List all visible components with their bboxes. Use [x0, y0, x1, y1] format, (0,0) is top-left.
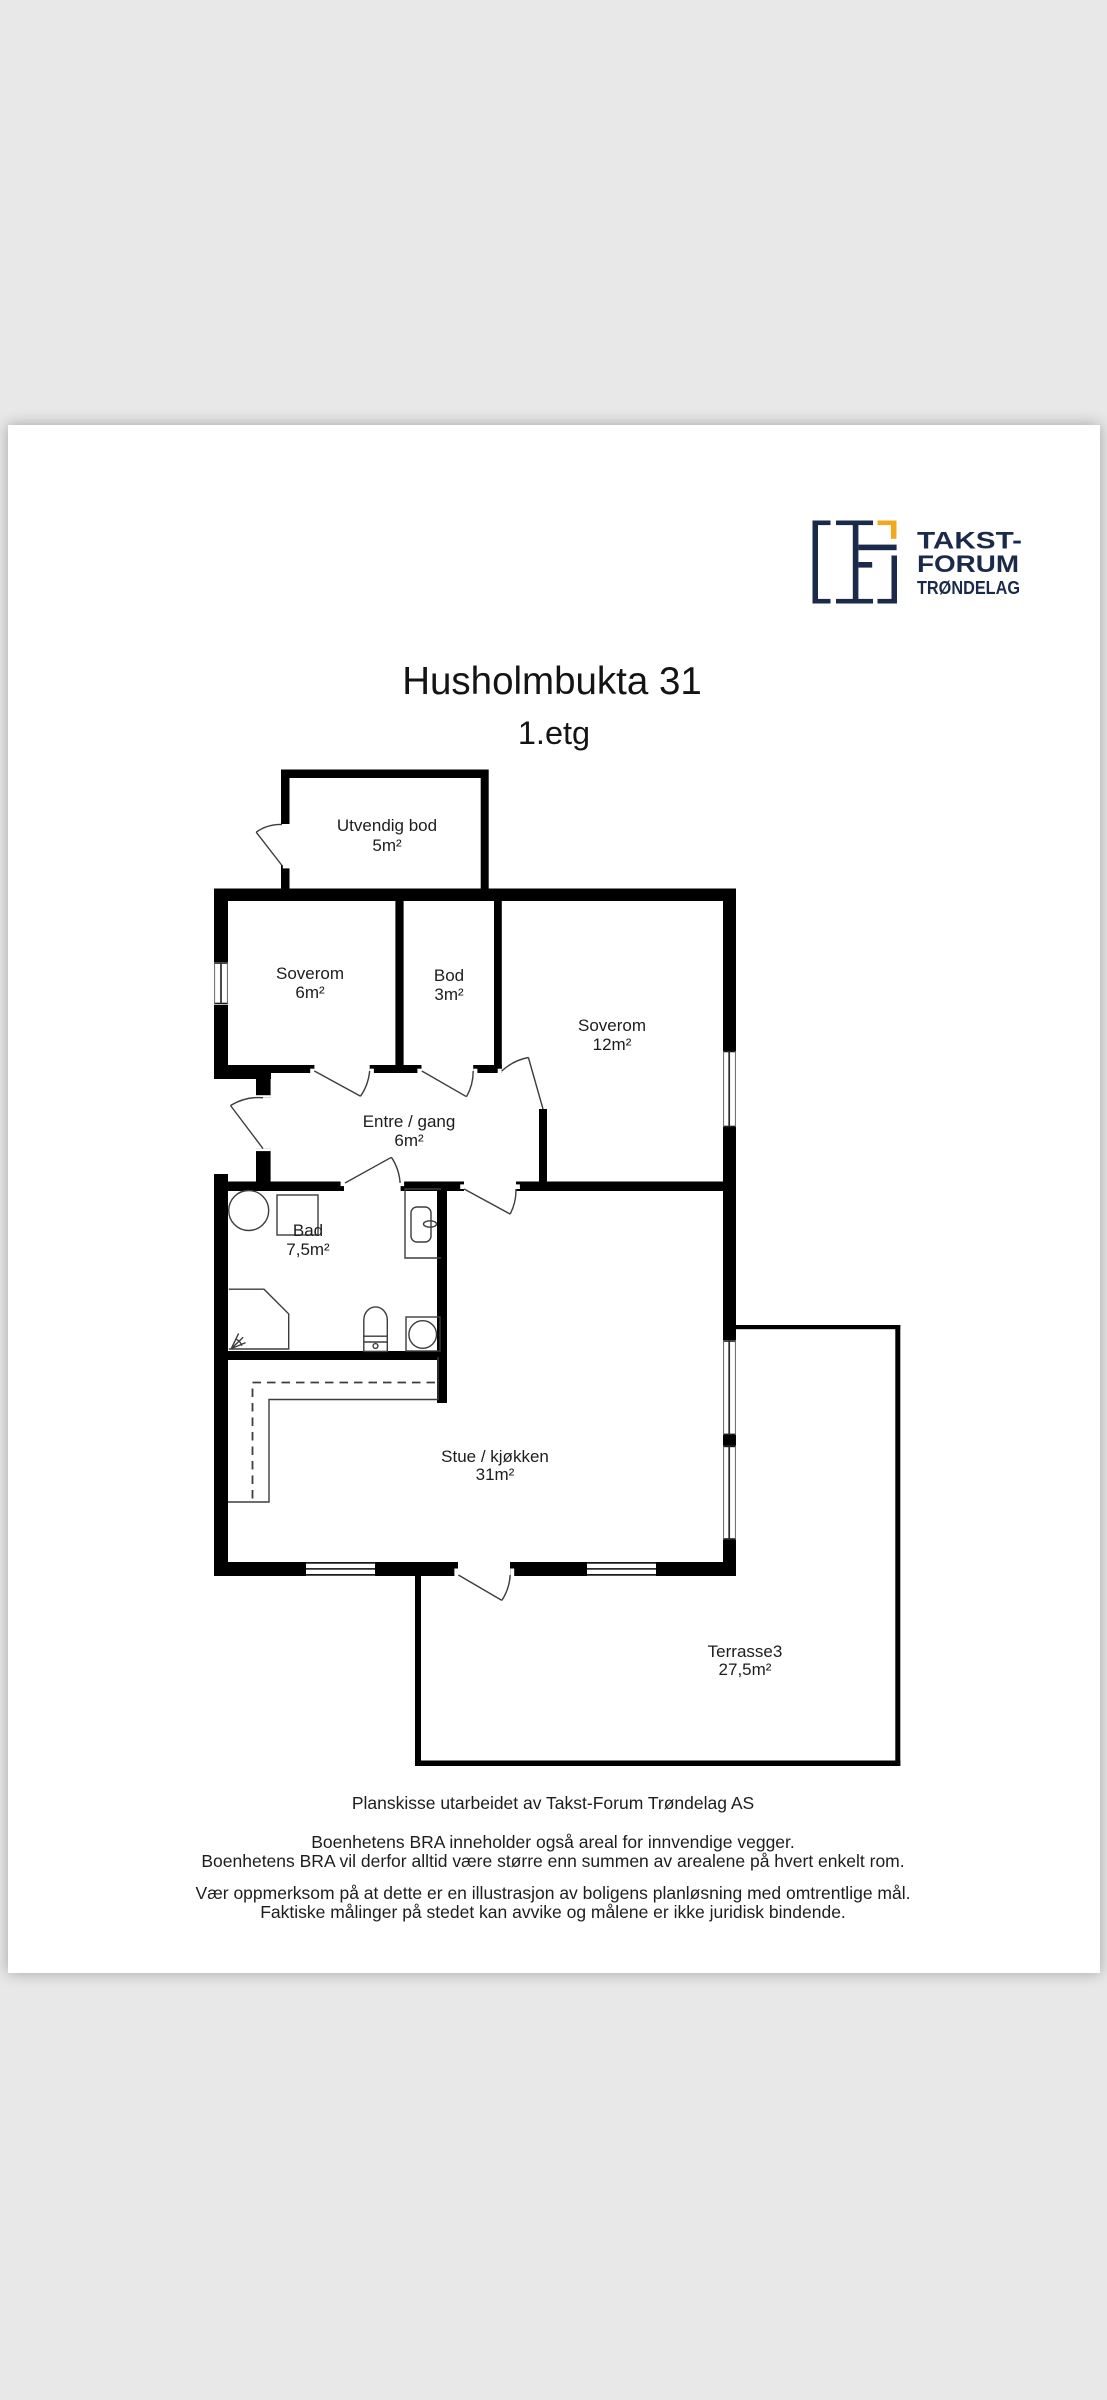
svg-text:TRØNDELAG: TRØNDELAG: [917, 577, 1020, 598]
svg-text:Boenhetens BRA vil derfor allt: Boenhetens BRA vil derfor alltid være st…: [201, 1851, 904, 1871]
svg-text:Bad: Bad: [293, 1221, 323, 1240]
svg-text:Planskisse utarbeidet av Takst: Planskisse utarbeidet av Takst-Forum Trø…: [352, 1793, 754, 1813]
svg-text:Faktiske målinger på stedet ka: Faktiske målinger på stedet kan avvike o…: [260, 1902, 846, 1922]
svg-text:Entre / gang: Entre / gang: [363, 1112, 456, 1131]
svg-text:6m²: 6m²: [394, 1131, 424, 1150]
svg-text:12m²: 12m²: [593, 1035, 632, 1054]
svg-text:5m²: 5m²: [372, 836, 402, 855]
svg-text:7,5m²: 7,5m²: [286, 1240, 330, 1259]
svg-text:3m²: 3m²: [434, 985, 464, 1004]
svg-text:FORUM: FORUM: [917, 551, 1019, 578]
svg-text:Vær oppmerksom på at dette er: Vær oppmerksom på at dette er en illustr…: [196, 1883, 911, 1903]
svg-text:Husholmbukta 31: Husholmbukta 31: [402, 660, 702, 703]
svg-text:Stue / kjøkken: Stue / kjøkken: [441, 1447, 549, 1466]
svg-text:Soverom: Soverom: [578, 1016, 646, 1035]
svg-text:Utvendig bod: Utvendig bod: [337, 816, 437, 835]
svg-text:6m²: 6m²: [295, 983, 325, 1002]
svg-text:1.etg: 1.etg: [518, 715, 590, 751]
svg-text:Soverom: Soverom: [276, 964, 344, 983]
svg-text:Bod: Bod: [434, 966, 464, 985]
svg-text:Boenhetens BRA inneholder også: Boenhetens BRA inneholder også areal for…: [311, 1832, 795, 1852]
svg-text:31m²: 31m²: [476, 1465, 515, 1484]
svg-text:27,5m²: 27,5m²: [719, 1660, 772, 1679]
svg-text:Terrasse3: Terrasse3: [708, 1642, 783, 1661]
